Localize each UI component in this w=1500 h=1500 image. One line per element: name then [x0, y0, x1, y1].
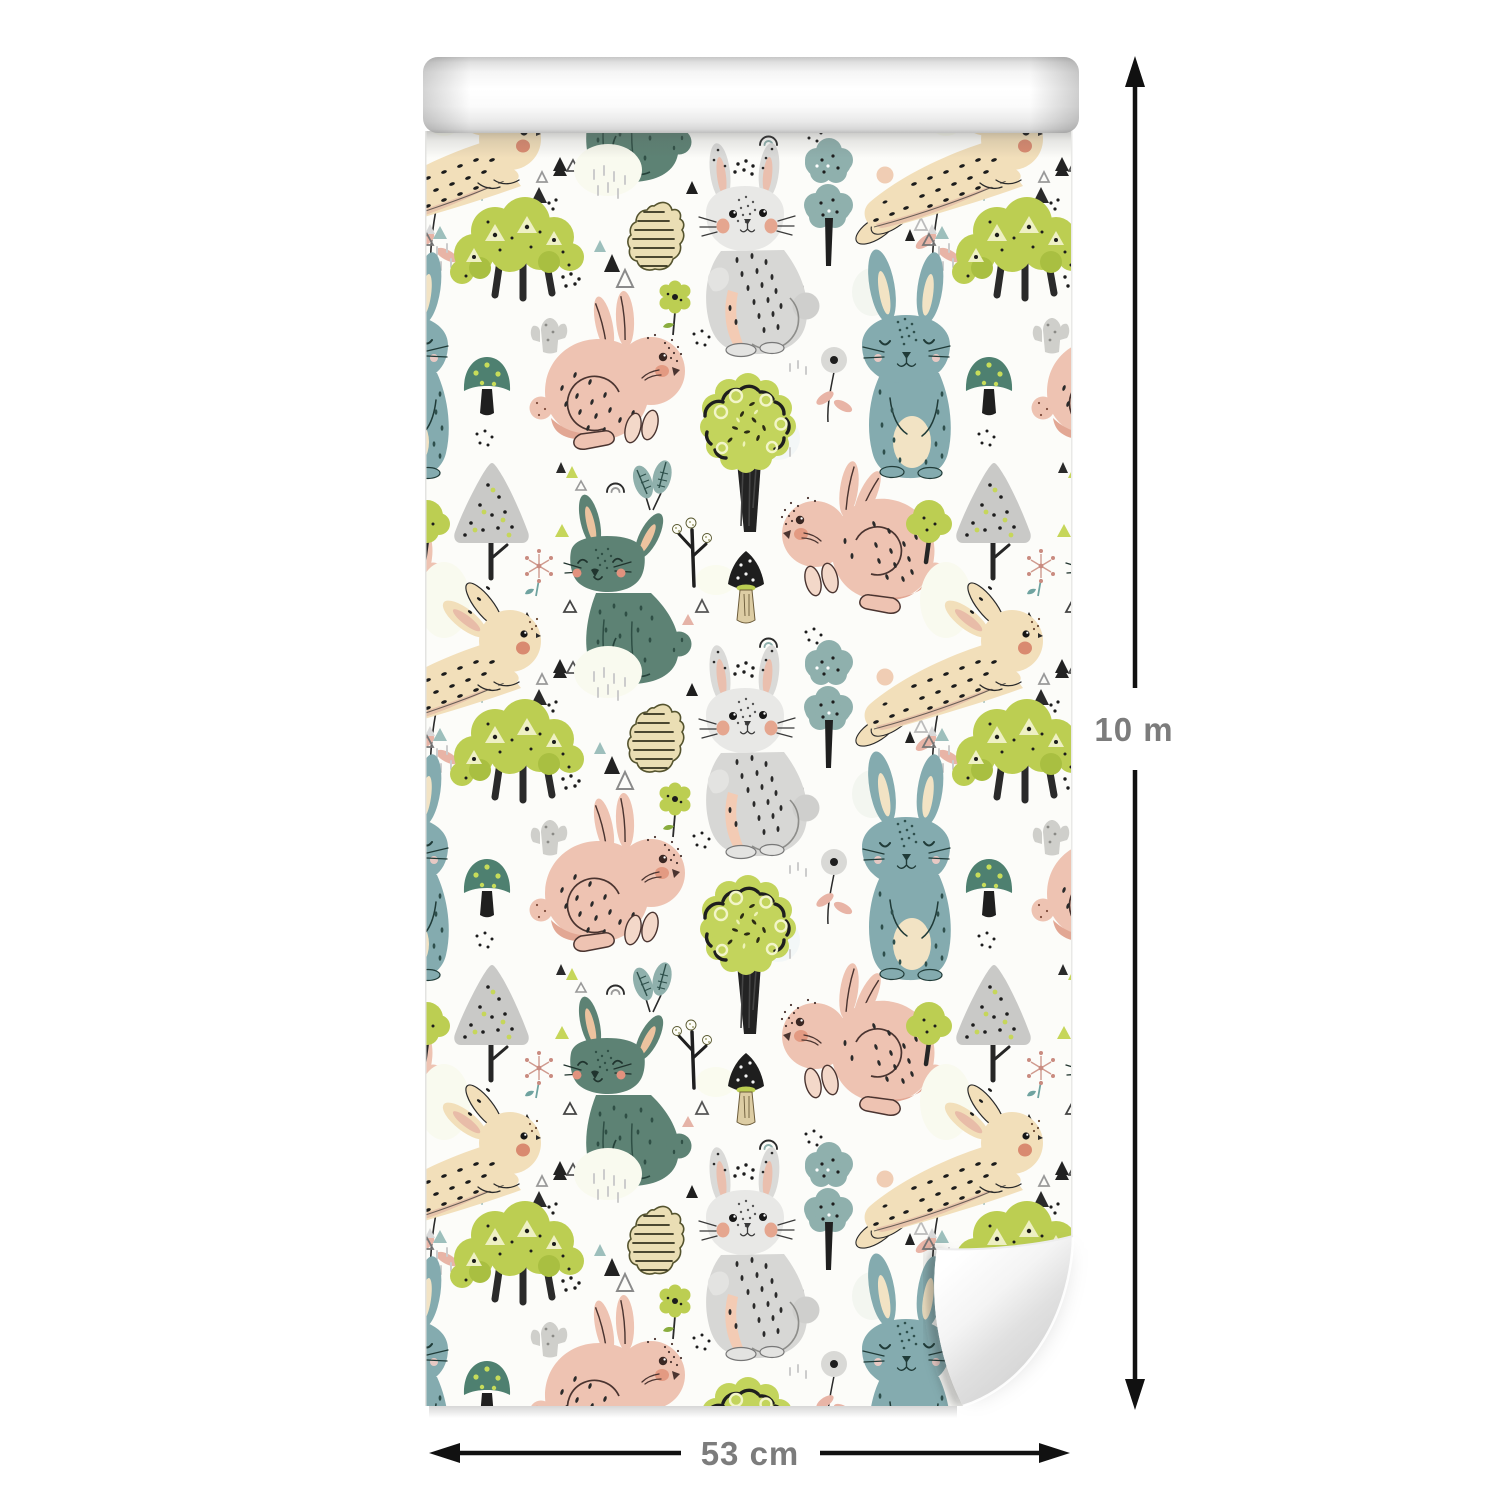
- svg-text:53 cm: 53 cm: [701, 1435, 800, 1472]
- svg-text:10 m: 10 m: [1094, 711, 1173, 748]
